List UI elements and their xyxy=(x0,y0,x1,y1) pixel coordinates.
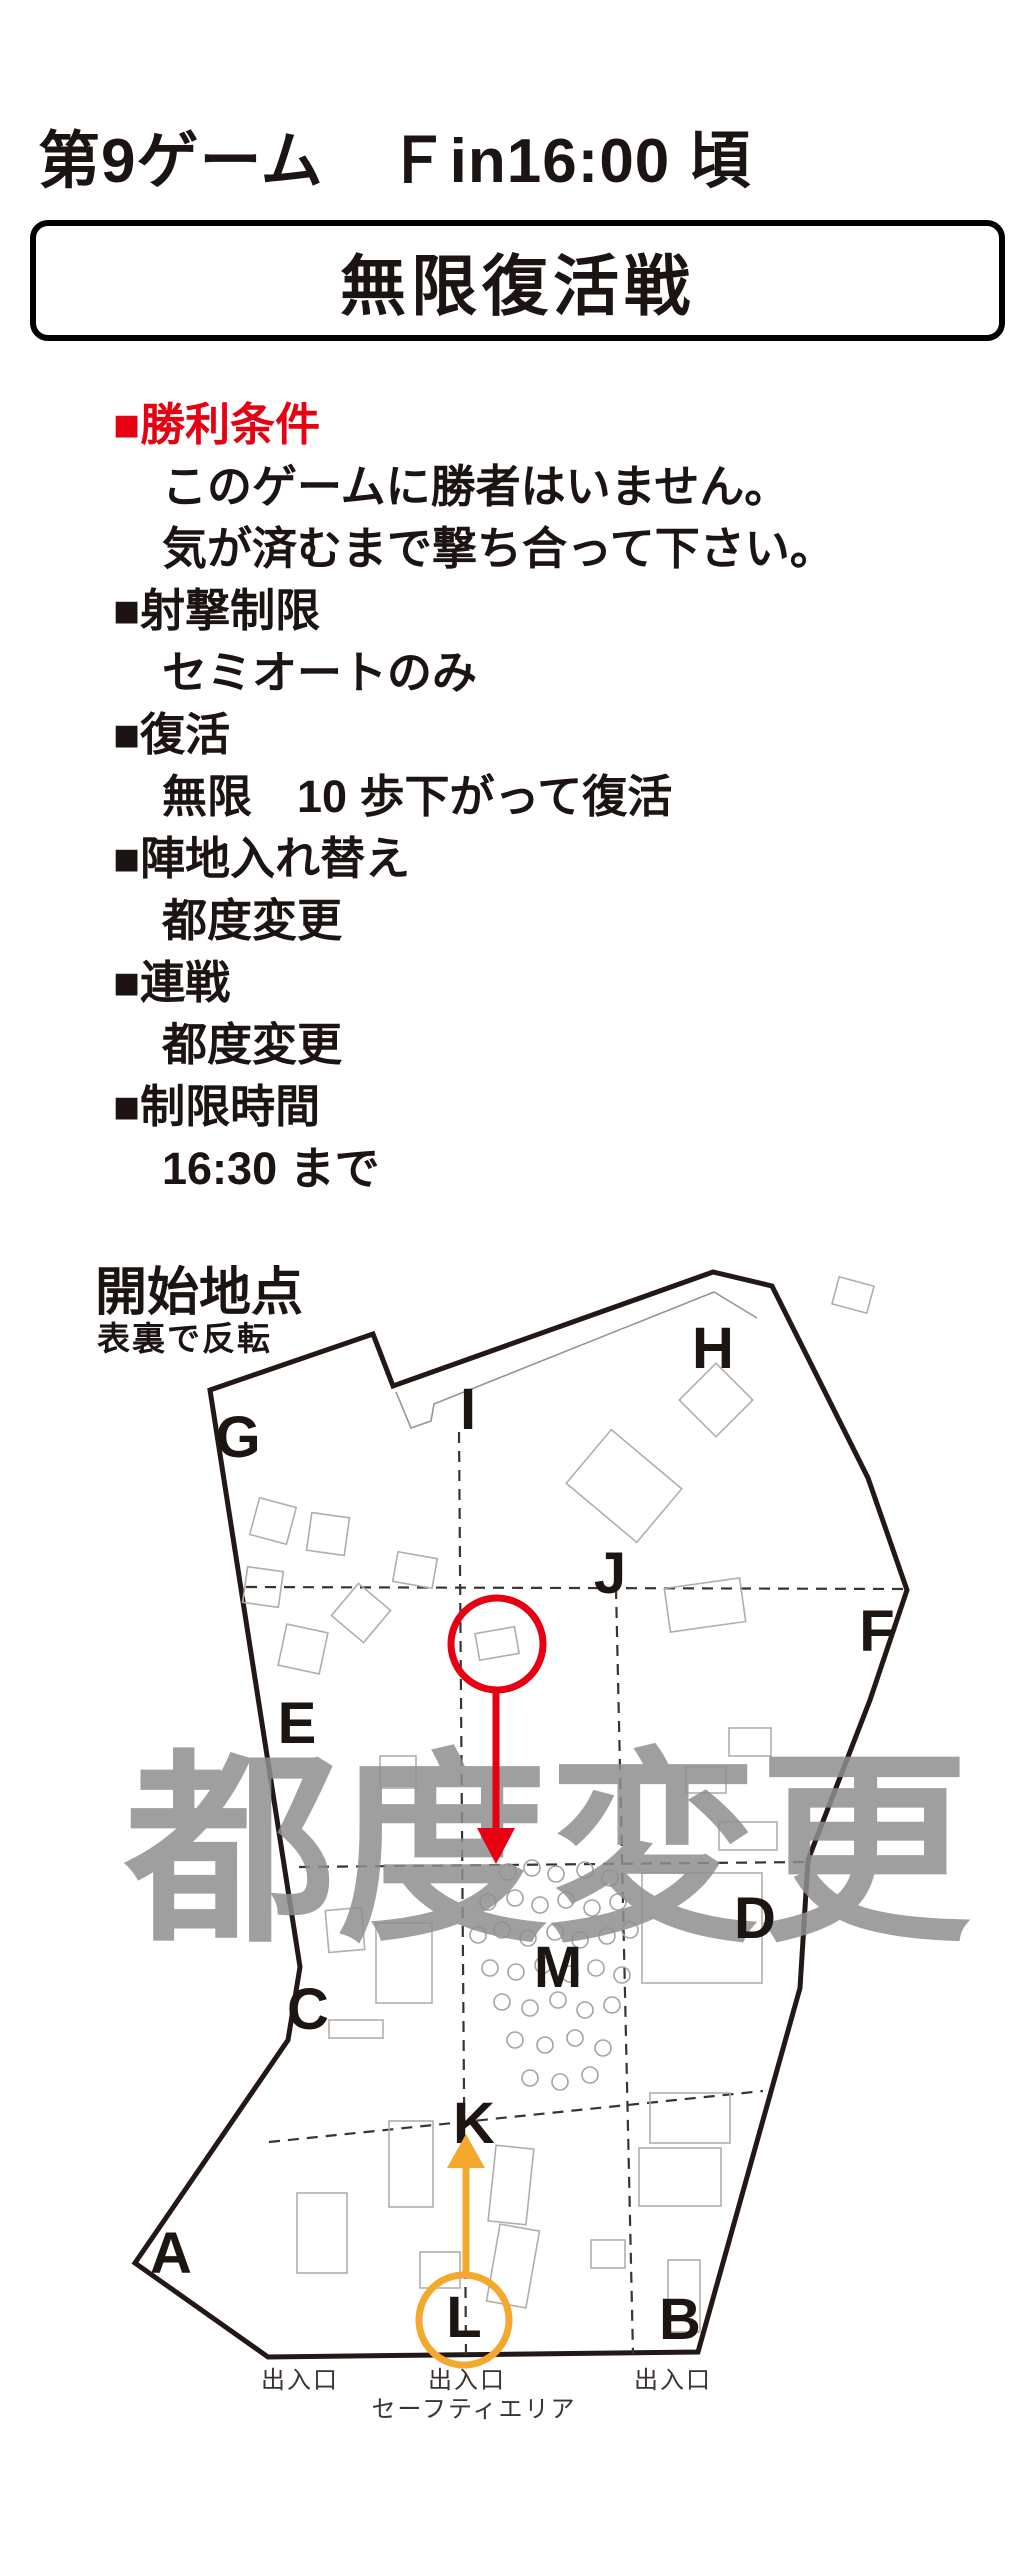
map-letter-D: D xyxy=(734,1886,776,1951)
map-letter-G: G xyxy=(215,1405,260,1470)
entrance-label-1: 出入口 xyxy=(261,2367,339,2394)
entrance-label-2: 出入口 xyxy=(428,2367,506,2394)
entrance-label-3: 出入口 xyxy=(634,2367,712,2394)
map-letter-M: M xyxy=(534,1935,582,2000)
entrance-labels: 出入口出入口出入口 xyxy=(261,2367,712,2394)
map-letter-H: H xyxy=(692,1316,734,1381)
map-letter-L: L xyxy=(446,2285,481,2350)
map-letter-F: F xyxy=(859,1599,894,1664)
safety-area-label: セーフティエリア xyxy=(371,2396,576,2423)
field-map: 都度変更 GIHJFEDMCKABL 出入口出入口出入口 セーフティエリア xyxy=(0,0,1029,2560)
map-letter-E: E xyxy=(278,1691,317,1756)
map-letter-J: J xyxy=(594,1541,626,1606)
map-letter-A: A xyxy=(150,2221,192,2286)
map-letter-C: C xyxy=(287,1977,329,2042)
watermark-text: 都度変更 xyxy=(123,1736,971,1966)
map-letter-I: I xyxy=(460,1377,476,1442)
map-letter-B: B xyxy=(659,2287,701,2352)
